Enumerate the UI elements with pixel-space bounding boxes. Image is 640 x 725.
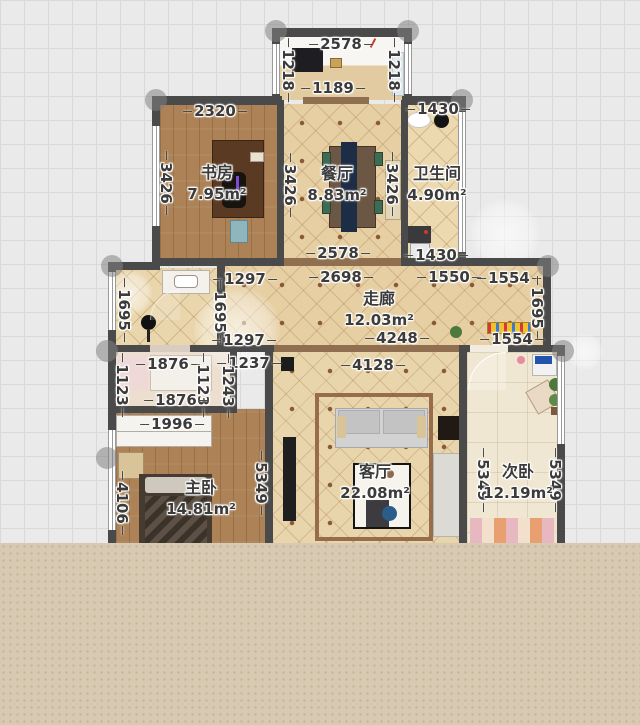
dim-master-left[interactable]: 4106 bbox=[113, 469, 131, 537]
living-corner-box[interactable] bbox=[281, 357, 294, 371]
drag-handle[interactable] bbox=[145, 89, 167, 111]
threshold bbox=[303, 97, 369, 104]
drag-handle[interactable] bbox=[96, 447, 118, 469]
dim-balcony-opening[interactable]: 1189 bbox=[299, 79, 367, 97]
dim-corridor-top-mid[interactable]: 1550 bbox=[415, 268, 483, 286]
dim-dining-bottom[interactable]: 2578 bbox=[304, 244, 372, 262]
dim-corridor-bottom[interactable]: 4248 bbox=[363, 329, 431, 347]
dim-closet-right[interactable]: 1243 bbox=[219, 352, 237, 420]
window[interactable] bbox=[557, 356, 565, 444]
dim-foyer-bottom[interactable]: 1297 bbox=[210, 331, 278, 349]
dim-study-right[interactable]: 3426 bbox=[281, 151, 299, 219]
dim-study-width[interactable]: 2320 bbox=[181, 102, 249, 120]
dim-closet-top[interactable]: 1876 bbox=[134, 355, 202, 373]
dim-corridor-bottom-right[interactable]: 1554 bbox=[478, 330, 546, 348]
second-bed[interactable] bbox=[470, 518, 556, 543]
chaise-lounge[interactable] bbox=[433, 453, 460, 537]
second-flowers bbox=[517, 356, 525, 364]
sofa-pillow bbox=[337, 416, 346, 438]
dim-balcony-width[interactable]: 2578 bbox=[307, 35, 375, 53]
balcony-stool[interactable] bbox=[330, 58, 342, 68]
coffee-table-round[interactable] bbox=[382, 506, 397, 521]
foyer-stool-leg bbox=[147, 330, 150, 342]
dim-closet-left[interactable]: 1123 bbox=[113, 351, 131, 419]
room-label-master[interactable]: 主卧 14.81m² bbox=[166, 477, 236, 519]
door-opening bbox=[150, 345, 190, 352]
shower-unit[interactable] bbox=[407, 226, 431, 243]
room-label-bathroom[interactable]: 卫生间 4.90m² bbox=[407, 163, 466, 205]
dim-living-top[interactable]: 4128 bbox=[339, 356, 407, 374]
dim-corridor-top-left[interactable]: 2698 bbox=[307, 268, 375, 286]
room-label-dining[interactable]: 餐厅 8.83m² bbox=[307, 163, 366, 205]
dim-closet-second[interactable]: 1876 bbox=[142, 391, 210, 409]
dim-study-left[interactable]: 3426 bbox=[157, 149, 175, 217]
dim-master-right[interactable]: 5349 bbox=[252, 449, 270, 517]
dim-wardrobe[interactable]: 1996 bbox=[138, 415, 206, 433]
dim-dining-right[interactable]: 3426 bbox=[383, 150, 401, 218]
second-laptop bbox=[535, 356, 552, 364]
shower-unit-dot bbox=[424, 230, 428, 234]
room-label-corridor[interactable]: 走廊 12.03m² bbox=[344, 288, 414, 330]
dining-chair[interactable] bbox=[374, 152, 383, 166]
dim-balcony-left[interactable]: 1218 bbox=[279, 36, 297, 104]
dim-foyer-left[interactable]: 1695 bbox=[115, 276, 133, 344]
study-notebook[interactable] bbox=[250, 152, 264, 162]
room-label-second[interactable]: 次卧 12.19m² bbox=[483, 461, 553, 503]
sofa-pillow bbox=[417, 416, 426, 438]
corridor-plant[interactable] bbox=[450, 326, 462, 338]
dim-bath-top[interactable]: 1430 bbox=[404, 100, 472, 118]
dim-balcony-right[interactable]: 1218 bbox=[385, 36, 403, 104]
drag-handle[interactable] bbox=[552, 340, 574, 362]
dining-chair[interactable] bbox=[374, 200, 383, 214]
media-tall-unit[interactable] bbox=[283, 437, 296, 521]
bottom-panel bbox=[0, 543, 640, 725]
room-label-living[interactable]: 客厅 22.08m² bbox=[340, 461, 410, 503]
wall[interactable] bbox=[459, 352, 467, 543]
dim-bath-bottom[interactable]: 1430 bbox=[402, 246, 470, 264]
drag-handle[interactable] bbox=[101, 255, 123, 277]
window[interactable] bbox=[404, 44, 412, 94]
room-label-study[interactable]: 书房 7.95m² bbox=[187, 162, 246, 204]
foyer-basin bbox=[174, 275, 198, 288]
study-mat[interactable] bbox=[230, 220, 248, 243]
